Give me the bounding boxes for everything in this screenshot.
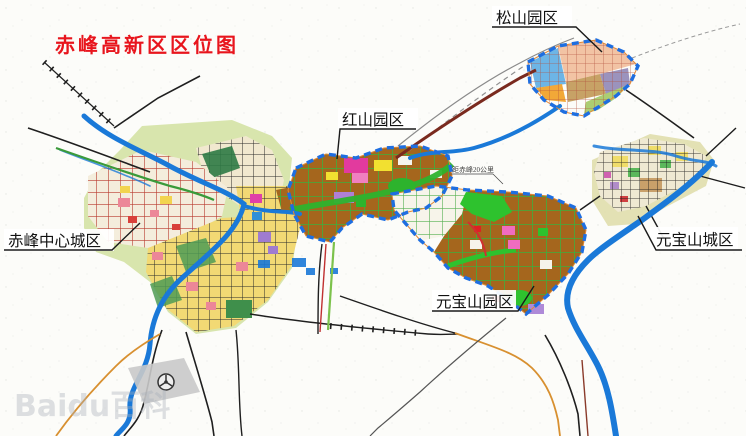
label-text: 元宝山园区 bbox=[436, 293, 514, 311]
map-canvas: 赤峰高新区区位图 距赤峰20公里 松山园区 红山园区 赤峰中心城区 元宝山园区 … bbox=[0, 0, 746, 436]
page-title: 赤峰高新区区位图 bbox=[55, 33, 239, 57]
label-text: 松山园区 bbox=[496, 9, 558, 27]
label-text: 红山园区 bbox=[342, 111, 404, 129]
label-text: 赤峰中心城区 bbox=[8, 232, 101, 250]
distance-note-text: 距赤峰20公里 bbox=[452, 165, 494, 174]
baidu-watermark: Baidu百科 bbox=[14, 389, 170, 424]
city-green-block bbox=[226, 300, 252, 318]
label-text: 元宝山城区 bbox=[656, 231, 734, 249]
map-screenshot: 赤峰高新区区位图 距赤峰20公里 松山园区 红山园区 赤峰中心城区 元宝山园区 … bbox=[0, 0, 746, 436]
airport-icon-hub bbox=[164, 380, 168, 384]
